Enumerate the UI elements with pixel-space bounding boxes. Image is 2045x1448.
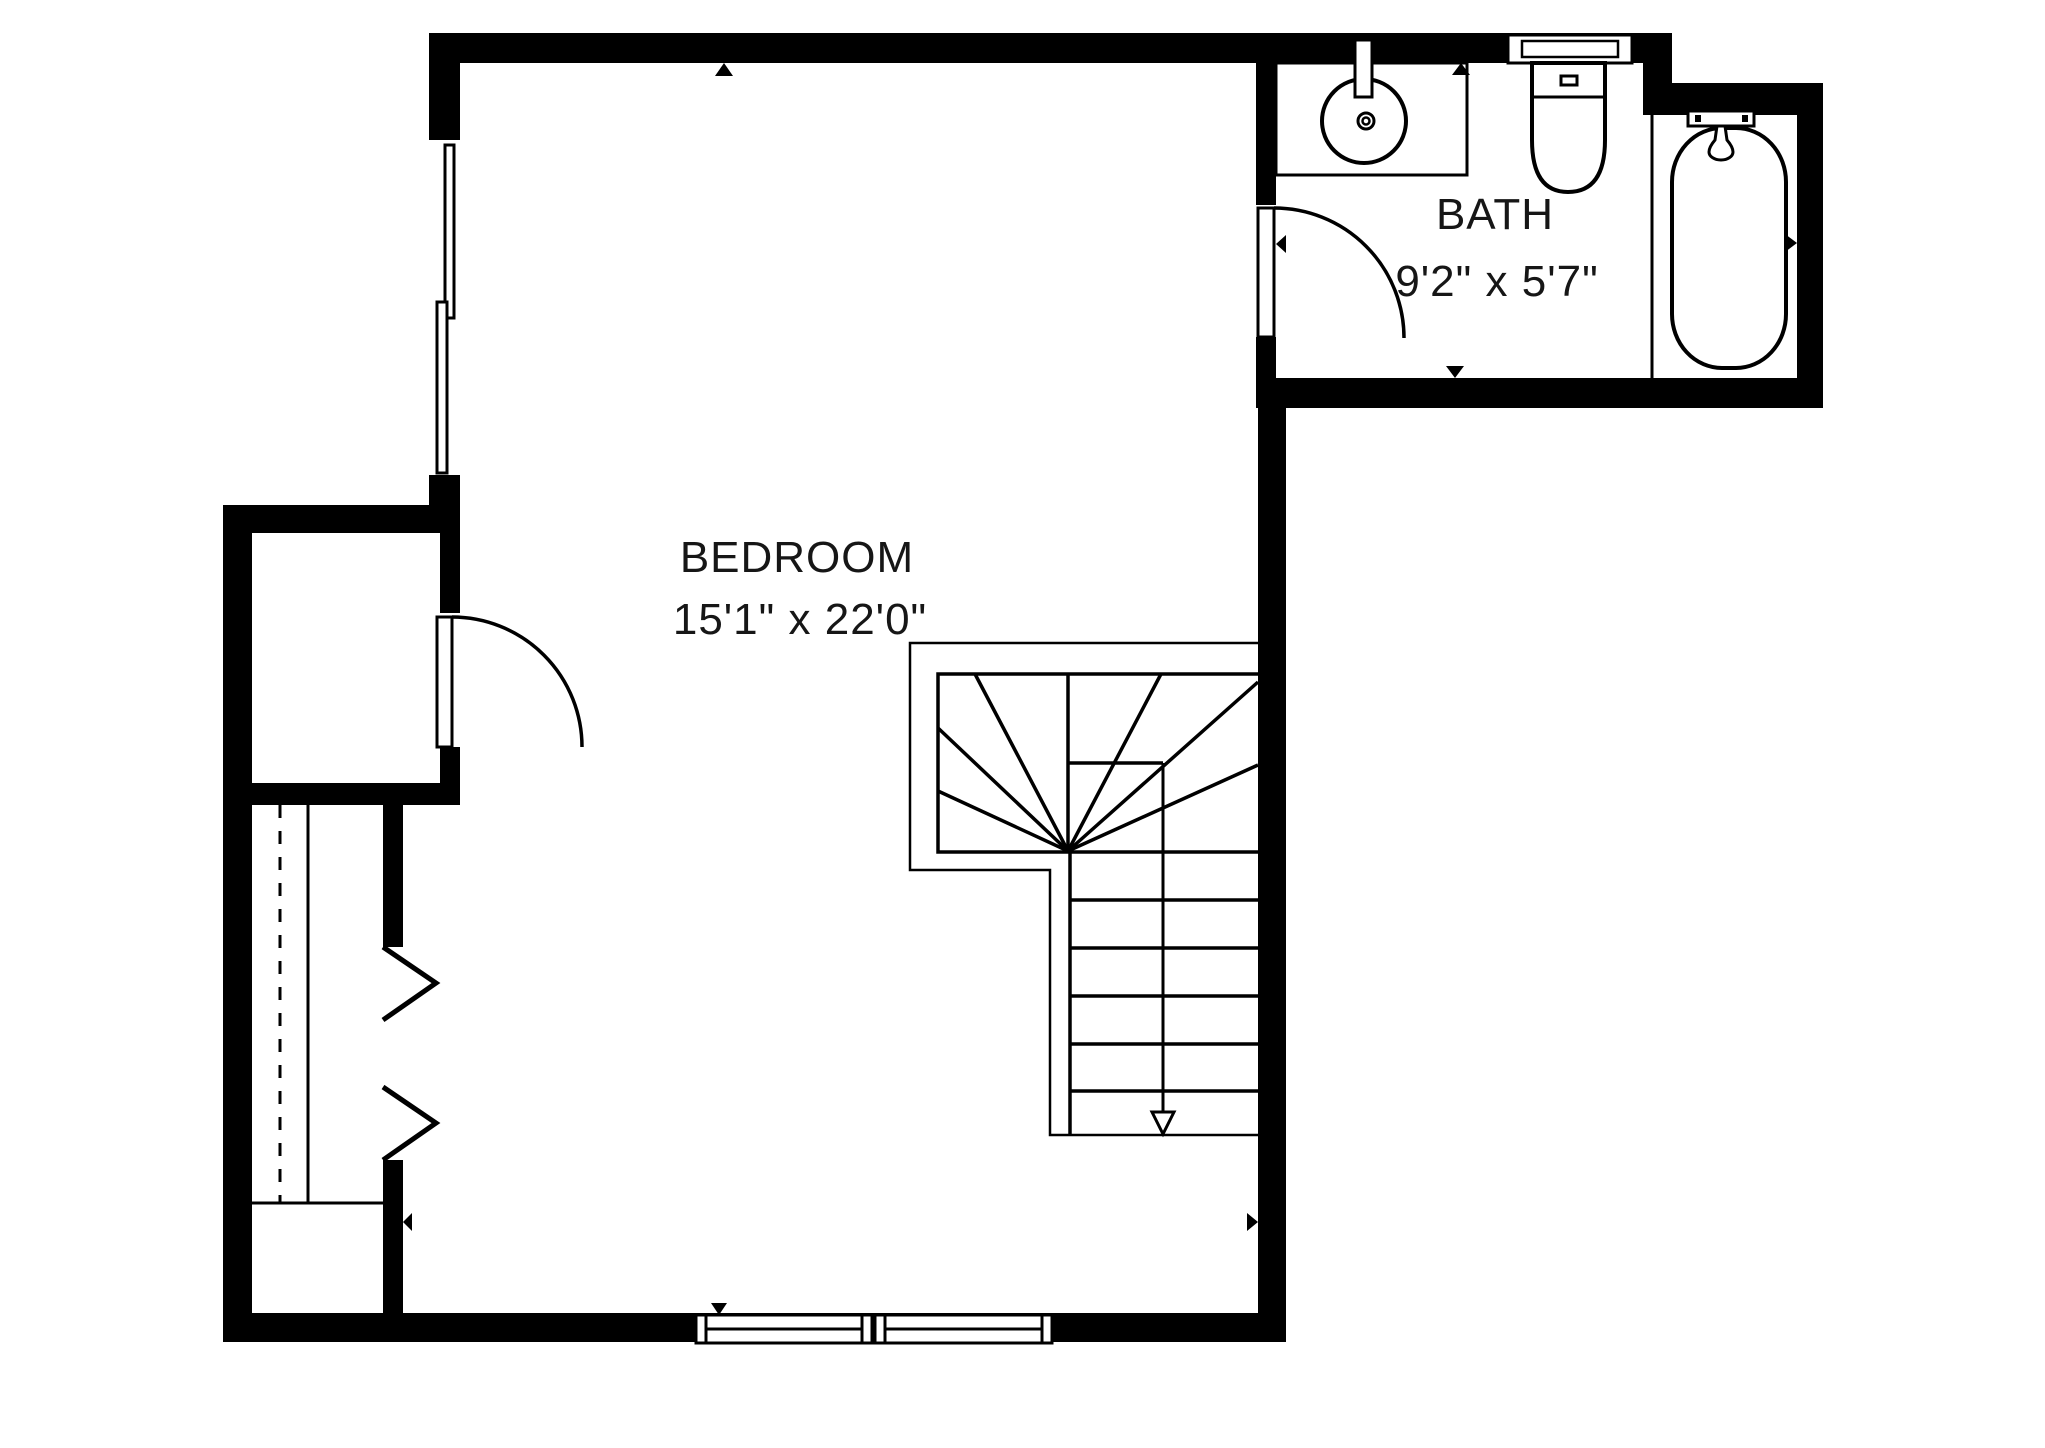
wall-closet-right-lower: [440, 747, 460, 805]
sink-faucet: [1355, 40, 1372, 97]
walls: [223, 33, 1823, 1342]
window-left: [429, 140, 460, 475]
marker-bedroom-left: [403, 1213, 412, 1231]
bedroom-dimensions: 15'1" x 22'0": [673, 595, 927, 644]
wall-closet-bottom: [223, 783, 460, 805]
wardrobe-bifold-doors: [383, 947, 436, 1160]
bath-dimensions: 9'2" x 5'7": [1395, 257, 1598, 306]
marker-bedroom-top: [715, 63, 733, 76]
toilet: [1508, 35, 1632, 192]
toilet-tank-inner: [1522, 41, 1618, 57]
wall-bath-bottom: [1256, 378, 1823, 408]
bathtub-rim: [1672, 128, 1786, 368]
marker-bath-right: [1785, 234, 1797, 252]
tub-handle-left: [1695, 115, 1701, 122]
closet-door-arc: [452, 617, 582, 747]
wall-bath-divider-upper: [1256, 63, 1276, 205]
marker-bath-bottom: [1446, 366, 1464, 378]
room-labels: BEDROOM 15'1" x 22'0" BATH 9'2" x 5'7": [673, 190, 1599, 644]
window-left-sash-1: [445, 145, 454, 318]
toilet-flush-button: [1561, 76, 1577, 85]
wall-closet-top: [223, 505, 460, 533]
wall-wardrobe-upper: [383, 805, 403, 947]
wall-outer-left: [223, 505, 252, 1342]
stair-direction-arrow: [1152, 1112, 1174, 1134]
bath-door-leaf: [1258, 208, 1274, 337]
wall-wardrobe-lower: [383, 1160, 403, 1342]
winder-staircase: [910, 643, 1258, 1135]
wall-left-upper: [429, 33, 460, 140]
window-bottom: [696, 1315, 1052, 1343]
closet-swing-door: [437, 617, 582, 747]
bedroom-label: BEDROOM: [680, 533, 914, 582]
dimension-markers: [403, 63, 1797, 1315]
tub-handle-right: [1742, 115, 1748, 122]
wardrobe: [252, 805, 436, 1203]
marker-bedroom-right: [1247, 1213, 1258, 1231]
closet-door-leaf: [437, 617, 452, 747]
bath-door-arc: [1274, 208, 1404, 338]
marker-bath-door: [1276, 235, 1286, 253]
bath-swing-door: [1258, 208, 1404, 338]
floor-plan: BEDROOM 15'1" x 22'0" BATH 9'2" x 5'7": [0, 0, 2045, 1448]
wall-right: [1258, 378, 1286, 1342]
wall-top: [429, 33, 1672, 63]
bathtub: [1672, 111, 1786, 368]
sink-drain-outer: [1358, 113, 1374, 129]
wall-closet-right-upper: [440, 533, 460, 613]
stairwell-outer-boundary: [910, 643, 1258, 1135]
wall-alcove-right: [1797, 83, 1823, 408]
winder-fan: [938, 674, 1258, 851]
window-left-sash-2: [437, 302, 447, 473]
bath-label: BATH: [1436, 190, 1554, 239]
